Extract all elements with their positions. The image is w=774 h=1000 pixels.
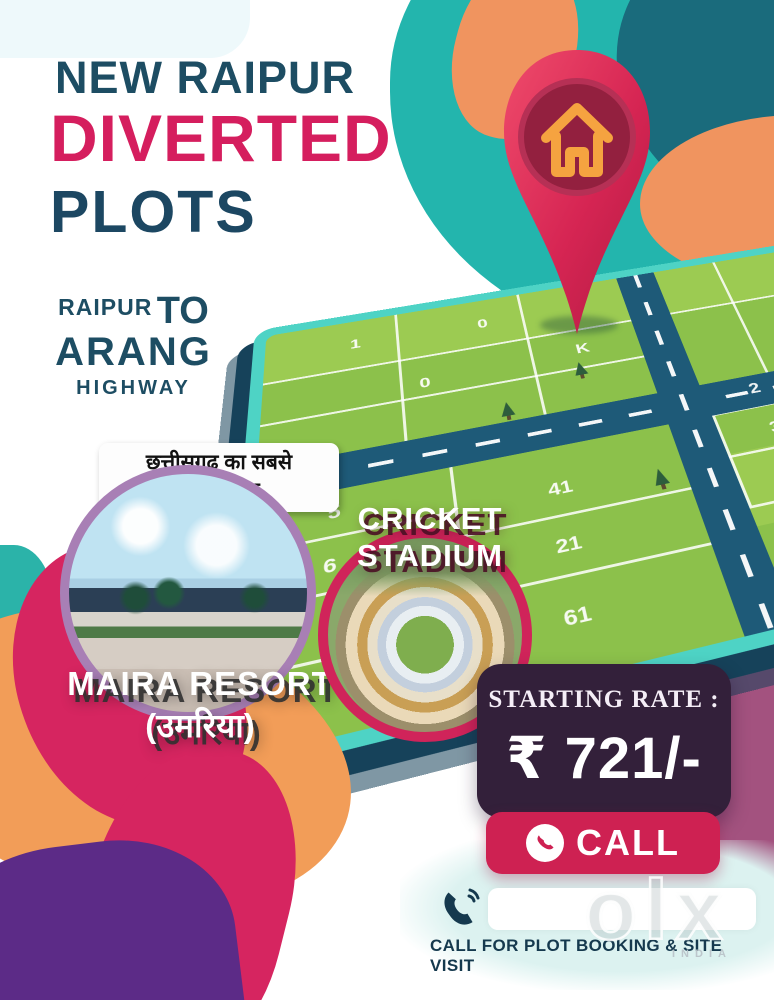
plot-number: 1	[350, 337, 361, 353]
resort-subname: (उमरिया)	[40, 702, 360, 747]
olx-watermark: olx	[585, 862, 730, 959]
rate-label: STARTING RATE :	[477, 686, 731, 714]
route-destination: ARANG	[46, 332, 221, 372]
route-label: RAIPUR TO ARANG HIGHWAY	[46, 292, 221, 398]
poster-title-line1: NEW RAIPUR	[55, 52, 355, 104]
stadium-label-line2: STADIUM	[357, 538, 503, 573]
tree-icon	[572, 361, 588, 376]
plot-number: 3	[767, 418, 774, 437]
tree-icon	[651, 467, 670, 485]
plot-number: K	[574, 341, 592, 358]
rate-value: ₹ 721/-	[477, 724, 731, 792]
plot-number: 21	[554, 532, 584, 559]
poster-title-line2: DIVERTED	[50, 100, 392, 176]
plot-number: 0	[419, 375, 432, 392]
olx-watermark-india: INDIA	[672, 948, 732, 960]
call-button-label: CALL	[576, 822, 680, 864]
route-to-word: TO	[157, 290, 209, 332]
plot-advert-poster: 1 0 0 K 5 6 7 41 21 61 2 3 2 6 3	[0, 0, 774, 1000]
plot-number: 41	[546, 477, 575, 501]
route-from: RAIPUR	[58, 294, 152, 320]
calling-phone-icon	[438, 882, 488, 932]
starting-rate-card: STARTING RATE : ₹ 721/-	[477, 664, 731, 818]
resort-name: MAIRA RESORT	[40, 665, 360, 703]
cricket-stadium-label: CRICKET STADIUM	[330, 500, 530, 574]
corner-tint-shape	[0, 0, 250, 58]
phone-icon	[526, 824, 564, 862]
location-pin-icon	[492, 42, 662, 342]
tree-icon	[499, 401, 515, 417]
route-highway: HIGHWAY	[46, 378, 221, 398]
poster-title-line3: PLOTS	[50, 178, 257, 246]
plot-number: 61	[562, 602, 595, 633]
stadium-label-line1: CRICKET	[358, 501, 503, 536]
